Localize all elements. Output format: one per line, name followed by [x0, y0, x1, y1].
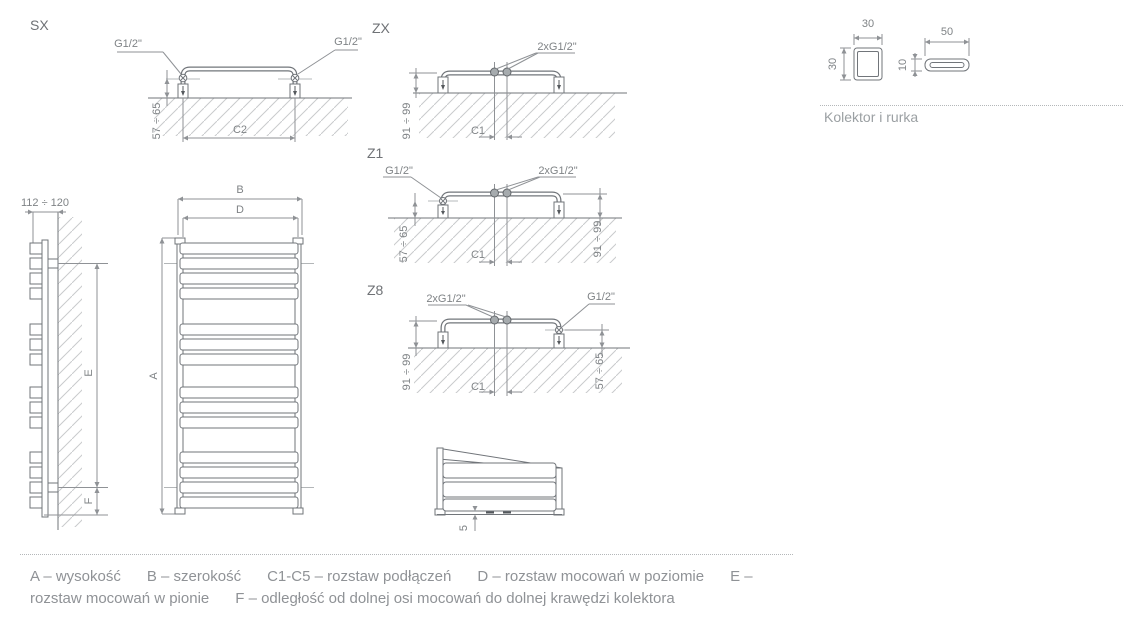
- z8-c1-label: C1: [471, 381, 485, 393]
- collector-height-label: 30: [827, 58, 839, 70]
- collector-caption: Kolektor i rurka: [824, 109, 918, 125]
- z1-c1-label: C1: [471, 249, 485, 261]
- side-f-label: F: [83, 498, 95, 505]
- zx-c1-label: C1: [471, 125, 485, 137]
- z8-right-distance-label: 57 ÷ 65: [594, 353, 606, 390]
- tube-width-label: 50: [941, 26, 953, 38]
- sx-wall-distance-label: 57 ÷ 65: [151, 103, 163, 140]
- legend-item-f: F – odległość od dolnej osi mocowań do d…: [235, 590, 674, 607]
- z1-connection-drawing: [375, 160, 625, 275]
- section-title-sx: SX: [30, 17, 49, 33]
- side-e-label: E: [83, 369, 95, 376]
- technical-drawing-page: SX ZX Z1 Z8 G1/2" G1/2" 57 ÷ 65 C2: [0, 0, 1123, 633]
- zx-wall-distance-label: 91 ÷ 99: [401, 103, 413, 140]
- bottom-separator: [20, 554, 793, 555]
- radiator-front-view: [150, 195, 320, 525]
- section-title-zx: ZX: [372, 20, 390, 36]
- z8-left-distance-label: 91 ÷ 99: [401, 354, 413, 391]
- dimension-legend: A – wysokośćB – szerokośćC1-C5 – rozstaw…: [30, 566, 796, 610]
- z1-center-thread-label: 2xG1/2": [538, 165, 577, 177]
- z1-left-thread-label: G1/2": [385, 165, 413, 177]
- detail-gap-label: 5: [458, 525, 470, 531]
- sx-c2-label: C2: [233, 124, 247, 136]
- zx-thread-label: 2xG1/2": [537, 41, 576, 53]
- tube-height-label: 10: [897, 59, 909, 71]
- side-depth-label: 112 ÷ 120: [21, 197, 69, 209]
- z8-right-thread-label: G1/2": [587, 291, 615, 303]
- collector-tube-sections: [815, 15, 990, 90]
- front-d-label: D: [236, 204, 244, 216]
- zx-connection-drawing: [395, 40, 630, 145]
- sx-left-thread-label: G1/2": [114, 38, 142, 50]
- legend-item-b: B – szerokość: [147, 568, 241, 585]
- bottom-detail-view: [430, 440, 580, 540]
- front-b-label: B: [236, 184, 243, 196]
- z8-center-thread-label: 2xG1/2": [426, 293, 465, 305]
- z1-right-distance-label: 91 ÷ 99: [592, 221, 604, 258]
- section-title-z8: Z8: [367, 282, 383, 298]
- collector-width-label: 30: [862, 18, 874, 30]
- section-title-z1: Z1: [367, 145, 383, 161]
- z1-left-distance-label: 57 ÷ 65: [398, 226, 410, 263]
- sx-right-thread-label: G1/2": [334, 36, 362, 48]
- legend-item-d: D – rozstaw mocowań w poziomie: [477, 568, 704, 585]
- legend-item-c: C1-C5 – rozstaw podłączeń: [267, 568, 451, 585]
- front-a-label: A: [148, 372, 160, 379]
- right-separator: [820, 105, 1123, 106]
- legend-item-a: A – wysokość: [30, 568, 121, 585]
